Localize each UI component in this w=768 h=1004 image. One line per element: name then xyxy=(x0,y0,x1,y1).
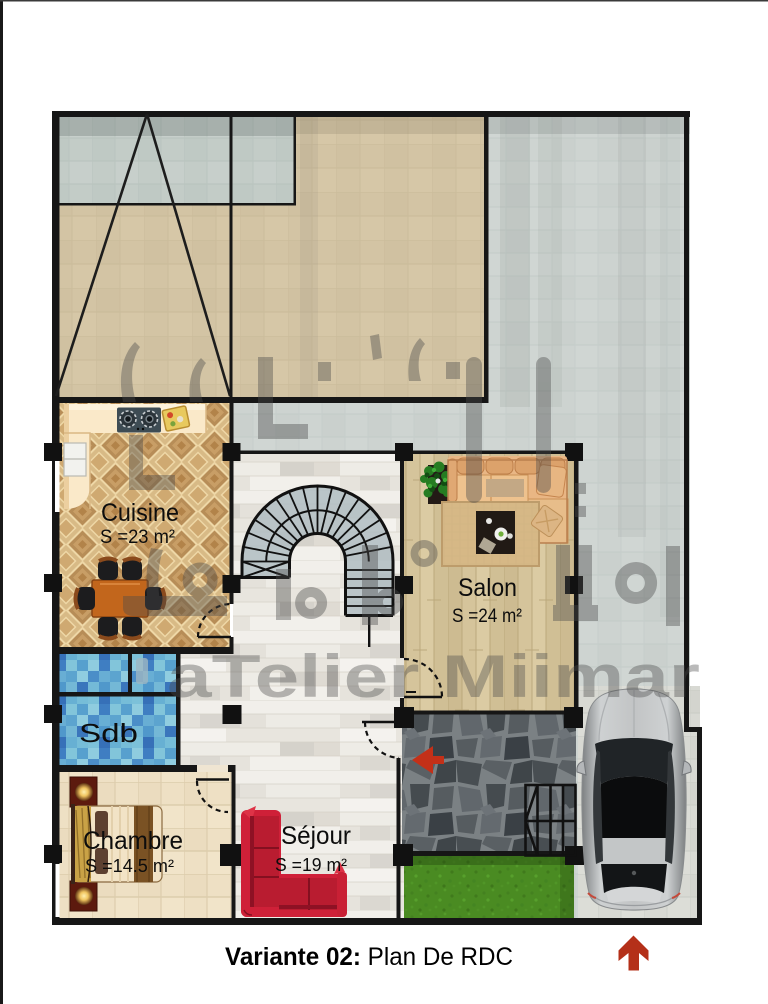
svg-text:S =24 m²: S =24 m² xyxy=(452,606,522,627)
svg-text:S =14.5 m²: S =14.5 m² xyxy=(85,856,174,876)
svg-text:Variante 02: Plan De RDC: Variante 02: Plan De RDC xyxy=(225,943,513,971)
svg-text:Sdb: Sdb xyxy=(79,718,138,748)
svg-text:Salon: Salon xyxy=(458,574,517,602)
svg-text:aTelier Miimar: aTelier Miimar xyxy=(167,643,700,710)
svg-text:S =19 m²: S =19 m² xyxy=(275,855,347,875)
svg-text:S =23 m²: S =23 m² xyxy=(100,527,175,548)
svg-text:Cuisine: Cuisine xyxy=(101,499,179,527)
svg-text:Chambre: Chambre xyxy=(83,827,183,855)
svg-text:Séjour: Séjour xyxy=(281,822,351,850)
